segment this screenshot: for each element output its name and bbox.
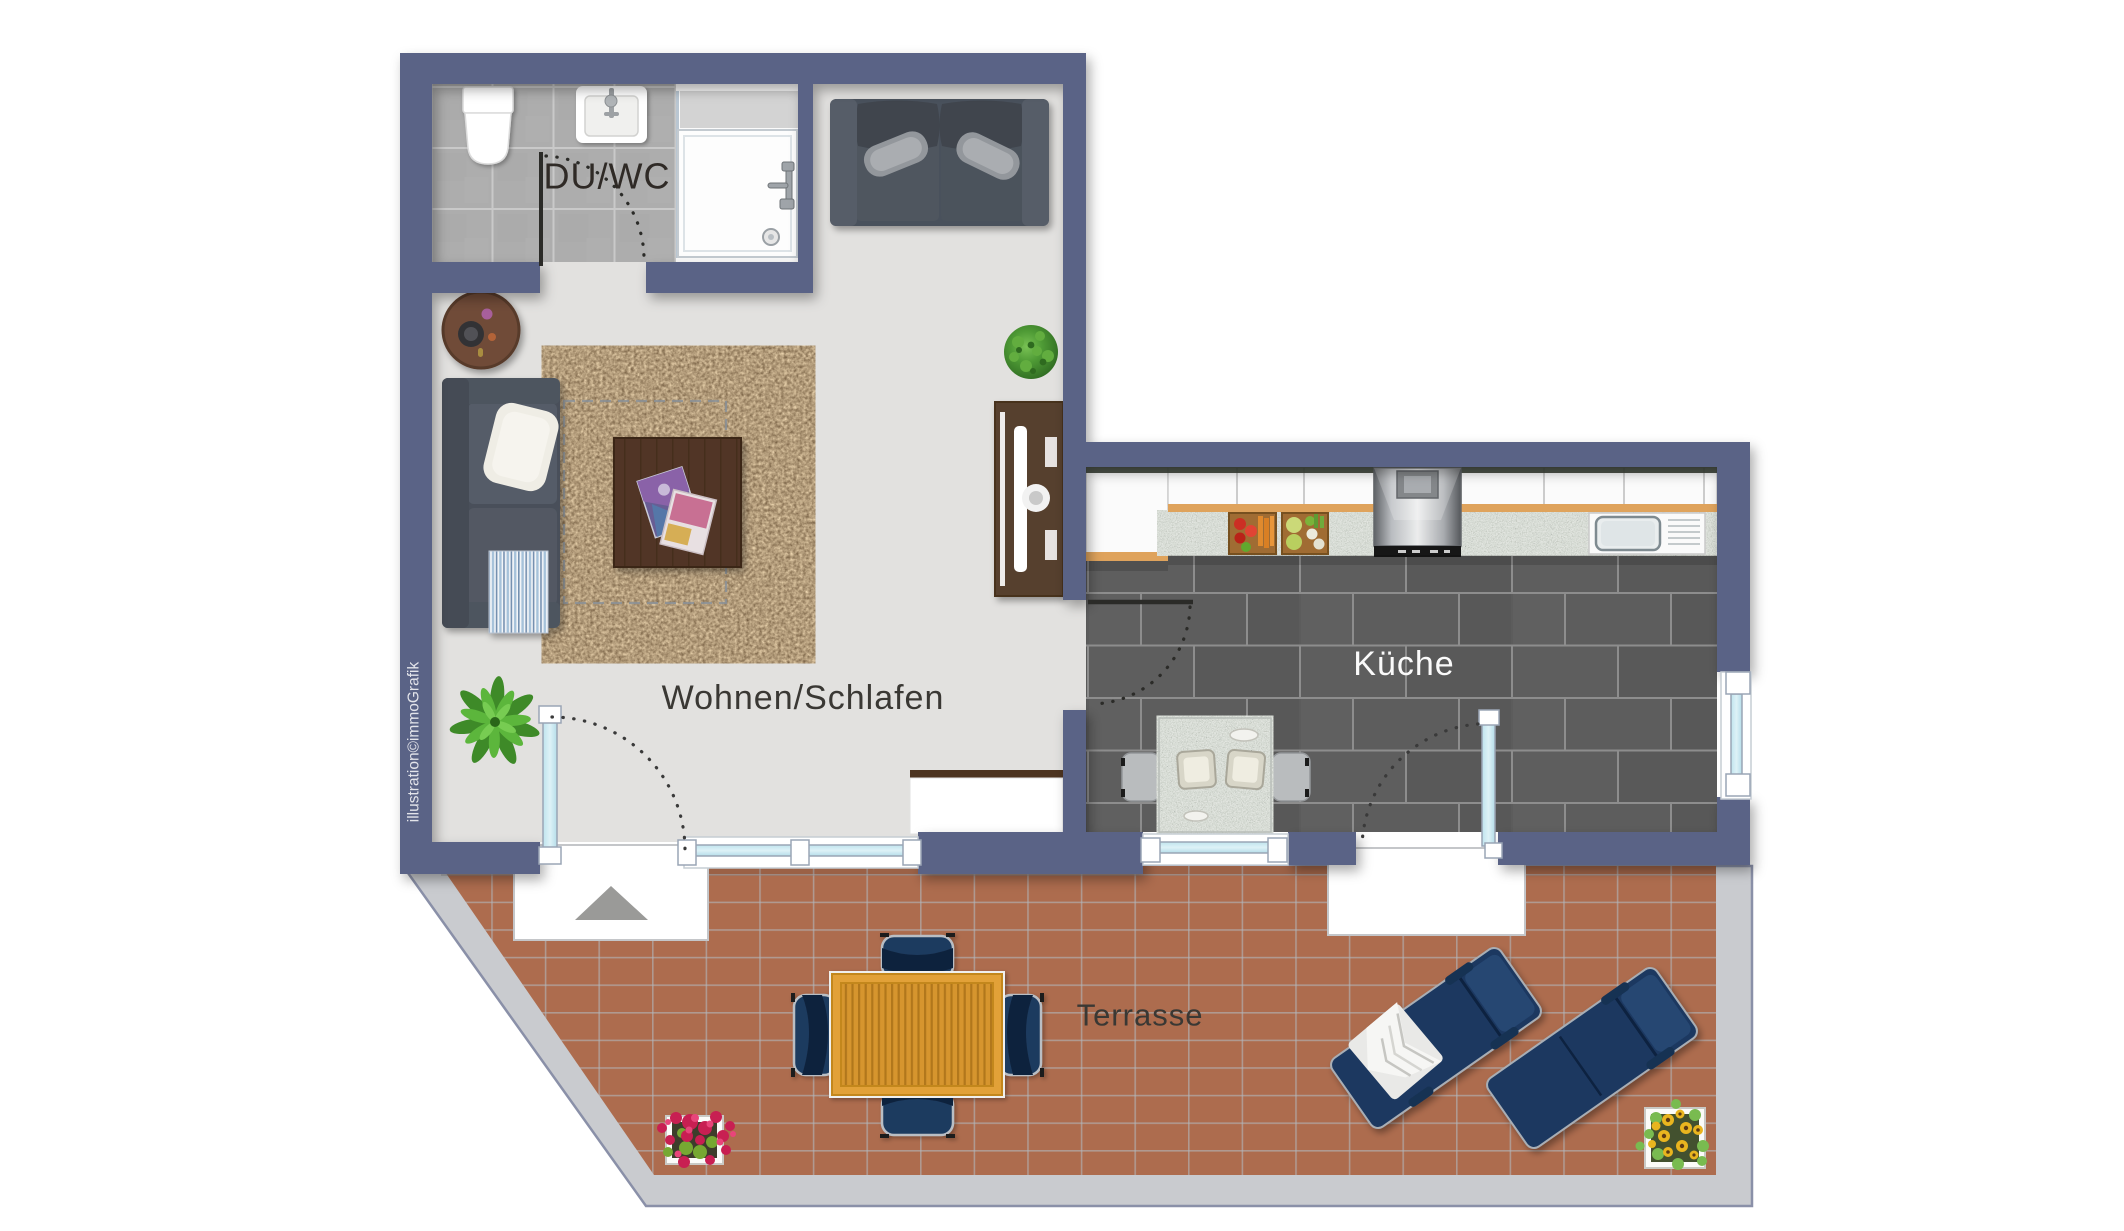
- svg-text:illustration©immoGrafik: illustration©immoGrafik: [406, 662, 423, 823]
- svg-text:Wohnen/Schlafen: Wohnen/Schlafen: [662, 679, 945, 717]
- svg-text:DU/WC: DU/WC: [544, 156, 671, 197]
- svg-text:Küche: Küche: [1353, 645, 1454, 683]
- svg-text:Terrasse: Terrasse: [1077, 998, 1204, 1033]
